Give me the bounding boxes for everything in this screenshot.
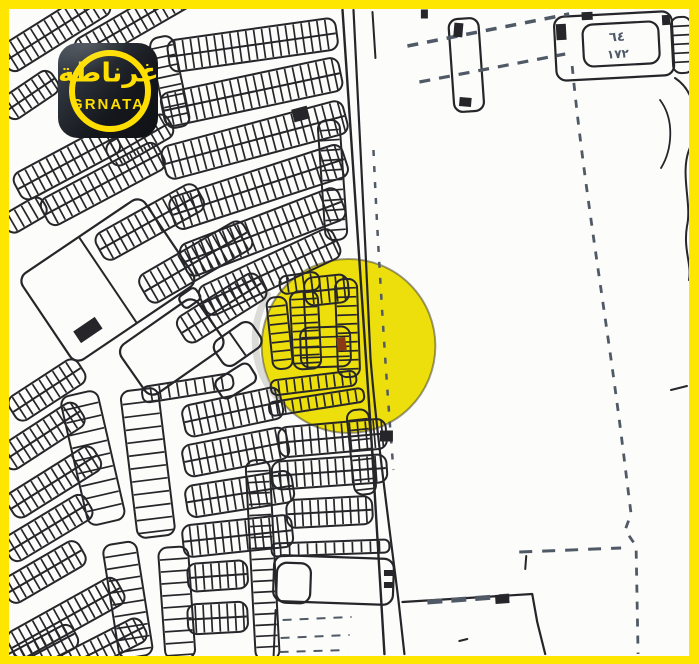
boundary-line <box>402 594 545 654</box>
boundary-line <box>671 386 687 390</box>
map-frame: ٦٤١٧٢ غرناطة GRNATA <box>0 0 699 664</box>
grnata-logo-badge: غرناطة GRNATA <box>58 43 158 138</box>
filled-parcel <box>73 317 102 343</box>
plot-number-label: ٦٤ <box>609 30 626 46</box>
parcel-strip <box>286 496 373 528</box>
filled-parcel <box>291 106 310 123</box>
location-marker <box>336 337 347 351</box>
boundary-line <box>372 12 375 58</box>
parcel-strip <box>9 67 62 122</box>
parcel-strip <box>9 538 89 606</box>
dashed-boundary <box>519 548 621 552</box>
parcel <box>18 196 199 365</box>
filled-parcel <box>581 12 592 21</box>
filled-parcel <box>453 23 463 38</box>
dashed-boundary <box>572 66 638 654</box>
parcel-strip <box>158 546 196 656</box>
filled-parcel <box>662 15 670 25</box>
parcel-strip <box>184 470 296 519</box>
dashed-boundary <box>280 650 348 652</box>
parcel-strip <box>187 560 249 592</box>
logo-latin-wordmark: GRNATA <box>58 96 158 113</box>
filled-parcel <box>380 431 393 442</box>
filled-parcel <box>384 570 393 576</box>
boundary-line <box>525 556 526 569</box>
parcel-strip <box>120 387 176 539</box>
map-area: ٦٤١٧٢ غرناطة GRNATA <box>9 9 689 656</box>
dashed-boundary <box>281 635 350 638</box>
plot-number-label: ١٧٢ <box>607 46 630 61</box>
parcel-strip <box>181 426 291 478</box>
parcel <box>116 295 227 398</box>
filled-parcel <box>556 24 567 41</box>
boundary-line <box>274 610 276 656</box>
boundary-line <box>660 100 670 168</box>
parcel-strip <box>38 140 168 228</box>
parcel <box>276 562 311 603</box>
logo-arabic-wordmark: غرناطة <box>58 59 158 88</box>
dashed-boundary <box>283 617 352 620</box>
parcel-strip <box>187 601 248 634</box>
dashed-boundary <box>407 14 569 46</box>
boundary-line <box>675 78 689 280</box>
filled-parcel <box>384 582 393 588</box>
parcel-strip <box>166 17 339 72</box>
parcel-strip <box>181 514 294 557</box>
parcel-strip <box>271 539 389 556</box>
filled-parcel <box>495 594 510 604</box>
dashed-boundary <box>419 54 565 82</box>
filled-parcel <box>421 10 428 19</box>
filled-parcel <box>459 97 472 107</box>
boundary-line <box>459 639 467 641</box>
